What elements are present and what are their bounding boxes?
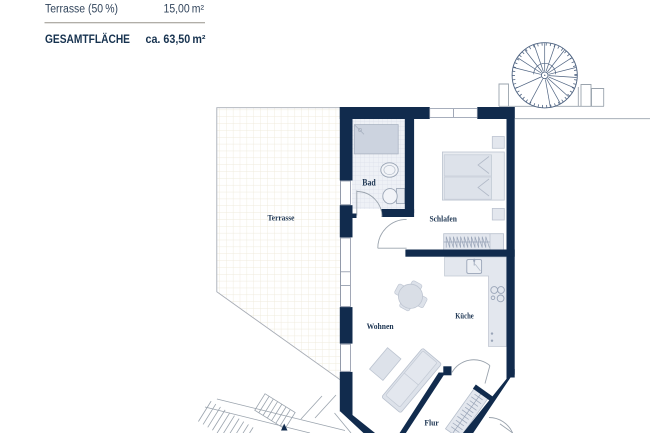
svg-text:Küche: Küche [455, 310, 474, 320]
svg-text:Flur: Flur [424, 417, 439, 427]
svg-text:15,00 m²: 15,00 m² [164, 3, 205, 15]
svg-text:Terrasse: Terrasse [268, 212, 295, 222]
svg-text:GESAMTFLÄCHE: GESAMTFLÄCHE [45, 33, 130, 46]
svg-text:ca. 63,50 m²: ca. 63,50 m² [146, 34, 206, 46]
svg-text:Bad: Bad [362, 178, 376, 188]
svg-text:Terrasse (50 %): Terrasse (50 %) [45, 3, 118, 15]
svg-text:Wohnen: Wohnen [367, 321, 394, 331]
svg-text:Schlafen: Schlafen [429, 213, 457, 223]
